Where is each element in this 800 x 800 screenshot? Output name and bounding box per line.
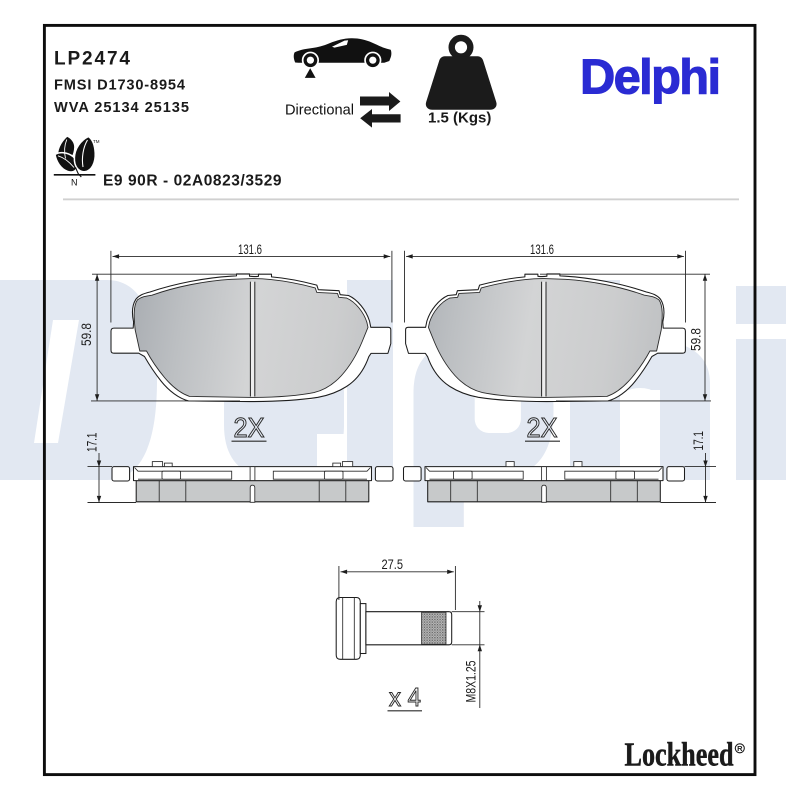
svg-text:17.1: 17.1	[84, 432, 100, 452]
svg-text:LP2474: LP2474	[54, 49, 130, 70]
svg-text:M8X1.25: M8X1.25	[463, 660, 479, 702]
svg-text:FMSI D1730-8954: FMSI D1730-8954	[54, 78, 186, 94]
svg-text:131.6: 131.6	[530, 241, 554, 257]
svg-text:Delphi: Delphi	[580, 50, 721, 104]
svg-text:2X: 2X	[234, 412, 265, 443]
svg-text:2X: 2X	[527, 412, 558, 443]
svg-text:WVA 25134 25135: WVA 25134 25135	[54, 100, 189, 116]
svg-text:E9 90R - 02A0823/3529: E9 90R - 02A0823/3529	[103, 173, 282, 190]
svg-text:1.5 (Kgs): 1.5 (Kgs)	[428, 110, 491, 127]
svg-text:131.6: 131.6	[238, 241, 262, 257]
svg-text:Lockheed: Lockheed	[625, 737, 734, 774]
svg-text:59.8: 59.8	[78, 323, 94, 346]
svg-text:17.1: 17.1	[690, 431, 706, 451]
svg-text:Directional: Directional	[285, 103, 354, 119]
svg-text:x 4: x 4	[389, 682, 421, 712]
svg-text:N: N	[71, 178, 78, 188]
svg-text:59.8: 59.8	[688, 328, 704, 351]
svg-text:R: R	[737, 744, 743, 753]
svg-text:TM: TM	[93, 139, 100, 144]
svg-text:27.5: 27.5	[382, 556, 404, 572]
